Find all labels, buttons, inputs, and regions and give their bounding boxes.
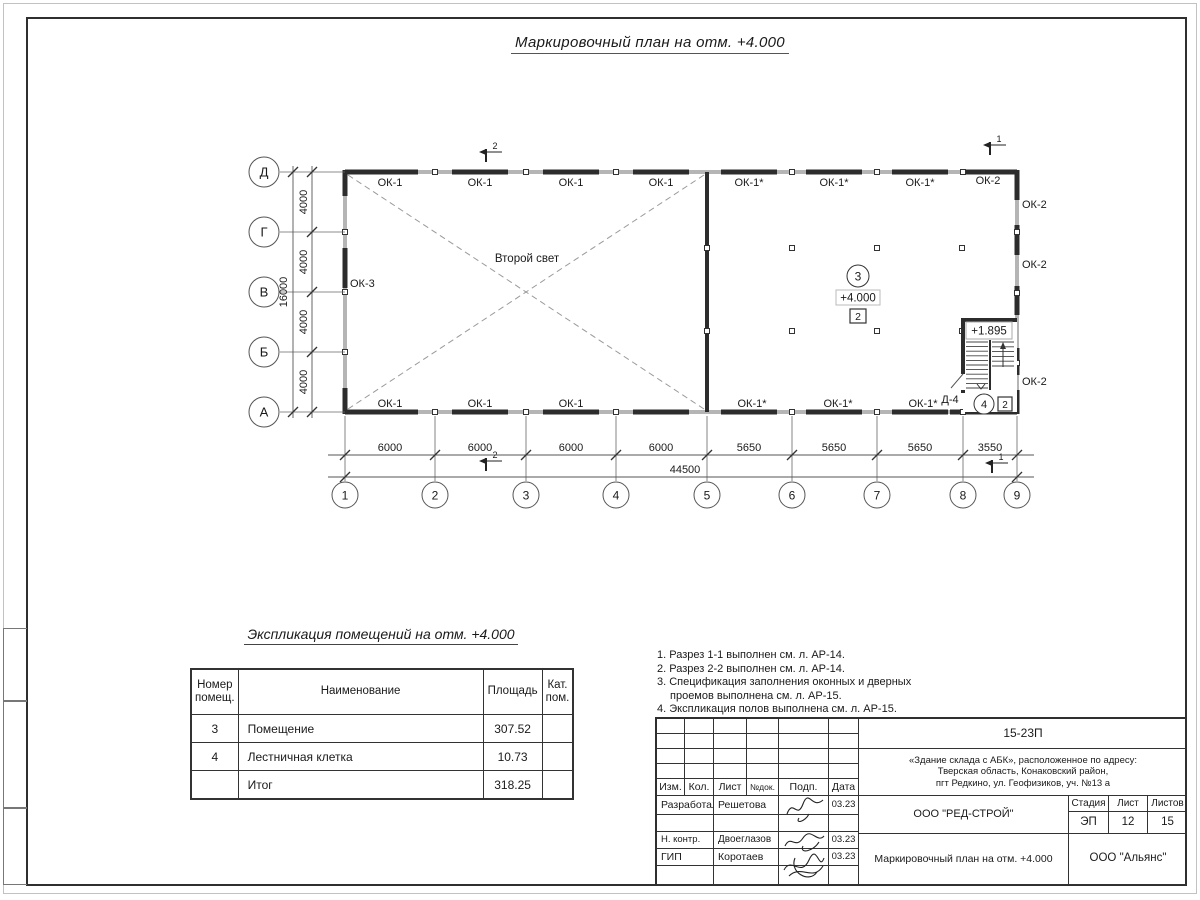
svg-text:ОК-1: ОК-1 — [378, 177, 403, 189]
second-light-cross — [348, 175, 704, 409]
explication-table: Номер помещ. Наименование Площадь Кат. п… — [190, 668, 574, 800]
section-2-top: 2 — [479, 141, 502, 162]
svg-text:ОК-1*: ОК-1* — [737, 398, 767, 410]
sheet-number: 12 — [1109, 812, 1148, 834]
svg-text:8: 8 — [960, 489, 967, 503]
svg-text:5650: 5650 — [822, 442, 846, 454]
svg-text:6000: 6000 — [559, 442, 583, 454]
svg-text:В: В — [260, 285, 269, 300]
svg-text:4: 4 — [981, 399, 987, 411]
svg-text:+4.000: +4.000 — [840, 293, 876, 305]
right-window-labels: ОК-2 ОК-2 ОК-2 — [1022, 199, 1047, 388]
svg-text:Б: Б — [260, 345, 269, 360]
svg-text:6: 6 — [789, 489, 796, 503]
svg-text:ОК-1: ОК-1 — [649, 177, 674, 189]
top-window-labels: ОК-1 ОК-1 ОК-1 ОК-1 ОК-1* ОК-1* ОК-1* ОК… — [378, 175, 1001, 189]
grid-circles-left: Д Г В Б А — [249, 157, 279, 427]
grid-circles-bottom: 1 2 3 4 5 6 7 8 9 — [332, 482, 1030, 508]
svg-text:Д: Д — [260, 165, 269, 180]
col-header-data: Дата — [829, 779, 859, 796]
page-title: Маркировочный план на отм. +4.000 — [350, 34, 950, 51]
signatures — [779, 794, 829, 885]
col-name: Наименование — [238, 669, 483, 715]
margin-box-3 — [3, 807, 27, 885]
total-dim-bottom: 44500 — [670, 464, 701, 476]
svg-text:2: 2 — [432, 489, 439, 503]
signature-gip — [784, 854, 824, 877]
svg-text:3550: 3550 — [978, 442, 1002, 454]
svg-text:5: 5 — [704, 489, 711, 503]
col-area: Площадь — [483, 669, 542, 715]
company: ООО "Альянс" — [1069, 834, 1187, 885]
project-address: «Здание склада с АБК», расположенное по … — [859, 749, 1187, 796]
col-header-kol: Кол. — [685, 779, 714, 796]
svg-text:9: 9 — [1014, 489, 1021, 503]
sheets-total: 15 — [1148, 812, 1187, 834]
svg-text:2: 2 — [855, 311, 861, 323]
bottom-dim-labels: 6000 6000 6000 6000 5650 5650 5650 3550 … — [378, 442, 1002, 476]
role-developer: Разработал — [657, 796, 714, 815]
note-line: 4. Экспликация полов выполнена см. л. АР… — [657, 703, 967, 717]
total-dim-left: 16000 — [278, 277, 290, 308]
col-header-izm: Изм. — [657, 779, 685, 796]
svg-text:ОК-1*: ОК-1* — [734, 177, 764, 189]
table-row: Итог 318.25 — [191, 771, 573, 800]
note-line: 2. Разрез 2-2 выполнен см. л. АР-14. — [657, 663, 967, 677]
drawing-sheet: Маркировочный план на отм. +4.000 — [0, 0, 1200, 900]
role-ncontr: Н. контр. — [657, 832, 714, 849]
doc-number: 15-23П — [859, 719, 1187, 749]
svg-text:ОК-1: ОК-1 — [559, 398, 584, 410]
svg-text:Г: Г — [260, 225, 267, 240]
bottom-window-labels: ОК-1 ОК-1 ОК-1 ОК-1* ОК-1* ОК-1* — [378, 398, 939, 410]
svg-text:ОК-1*: ОК-1* — [823, 398, 853, 410]
svg-text:ОК-1: ОК-1 — [378, 398, 403, 410]
svg-text:4: 4 — [613, 489, 620, 503]
svg-text:6000: 6000 — [649, 442, 673, 454]
svg-text:4000: 4000 — [298, 310, 310, 334]
svg-text:3: 3 — [523, 489, 530, 503]
svg-text:ОК-2: ОК-2 — [1022, 376, 1047, 388]
name-ncontr: Двоеглазов — [714, 832, 779, 849]
name-developer: Решетова — [714, 796, 779, 815]
door-label: Д-4 — [941, 394, 958, 406]
walls-dark-segments — [345, 170, 1017, 414]
svg-text:6000: 6000 — [378, 442, 402, 454]
left-window-label: ОК-3 — [350, 278, 375, 290]
note-line: 1. Разрез 1-1 выполнен см. л. АР-14. — [657, 649, 967, 663]
drawing-title-stamp: Маркировочный план на отм. +4.000 — [859, 834, 1069, 885]
col-category: Кат. пом. — [542, 669, 573, 715]
explication-title: Экспликация помещений на отм. +4.000 — [190, 626, 572, 642]
svg-text:4000: 4000 — [298, 370, 310, 394]
col-header-ndoc: №док. — [747, 779, 779, 796]
table-row: 4 Лестничная клетка 10.73 — [191, 743, 573, 771]
door-leaf — [951, 374, 963, 388]
svg-text:ОК-2: ОК-2 — [1022, 259, 1047, 271]
developer-company: ООО "РЕД-СТРОЙ" — [859, 796, 1069, 834]
walls-grey — [345, 172, 1017, 412]
note-line: 3. Спецификация заполнения оконных и две… — [657, 676, 967, 690]
col-room-number: Номер помещ. — [191, 669, 238, 715]
svg-text:4000: 4000 — [298, 190, 310, 214]
col-header-list: Лист — [714, 779, 747, 796]
date-developer: 03.23 — [829, 796, 859, 815]
svg-text:4000: 4000 — [298, 250, 310, 274]
stage-label: Стадия — [1069, 796, 1109, 812]
sheets-label: Листов — [1148, 796, 1187, 812]
svg-text:А: А — [260, 405, 269, 420]
second-light-label: Второй свет — [495, 253, 560, 265]
svg-text:1: 1 — [996, 134, 1001, 144]
table-row: 3 Помещение 307.52 — [191, 715, 573, 743]
svg-text:ОК-2: ОК-2 — [976, 175, 1001, 187]
svg-text:2: 2 — [492, 141, 497, 151]
svg-text:ОК-1*: ОК-1* — [905, 177, 935, 189]
margin-box-2 — [3, 700, 27, 809]
note-line: проемов выполнена см. л. АР-15. — [657, 690, 967, 704]
name-gip: Коротаев — [714, 849, 779, 866]
explication-header-row: Номер помещ. Наименование Площадь Кат. п… — [191, 669, 573, 715]
stair-level-label: +1.895 — [971, 326, 1007, 338]
svg-text:3: 3 — [855, 270, 862, 284]
floor-plan: +1.895 ОК-1 ОК-1 ОК-1 ОК-1 ОК-1* ОК-1* О… — [0, 100, 1200, 530]
svg-text:ОК-1: ОК-1 — [468, 177, 493, 189]
room3-marker: 3 +4.000 2 — [836, 265, 880, 323]
svg-text:ОК-1*: ОК-1* — [908, 398, 938, 410]
section-1-top: 1 — [983, 134, 1006, 155]
svg-text:1: 1 — [342, 489, 349, 503]
title-block: Изм. Кол. Лист №док. Подп. Дата Разработ… — [655, 717, 1187, 885]
column-squares — [343, 170, 1020, 415]
date-ncontr: 03.23 — [829, 832, 859, 849]
svg-text:2: 2 — [1002, 400, 1008, 411]
margin-box-1 — [3, 628, 27, 702]
role-gip: ГИП — [657, 849, 714, 866]
svg-text:ОК-1: ОК-1 — [468, 398, 493, 410]
date-gip: 03.23 — [829, 849, 859, 866]
svg-text:6000: 6000 — [468, 442, 492, 454]
svg-text:7: 7 — [874, 489, 881, 503]
signature-ncontr — [785, 834, 824, 851]
notes-list: 1. Разрез 1-1 выполнен см. л. АР-14. 2. … — [657, 649, 967, 717]
svg-text:5650: 5650 — [737, 442, 761, 454]
sheet-label: Лист — [1109, 796, 1148, 812]
svg-text:5650: 5650 — [908, 442, 932, 454]
svg-text:ОК-1*: ОК-1* — [819, 177, 849, 189]
svg-text:ОК-2: ОК-2 — [1022, 199, 1047, 211]
svg-text:ОК-1: ОК-1 — [559, 177, 584, 189]
signature-developer — [787, 798, 823, 822]
stage-value: ЭП — [1069, 812, 1109, 834]
